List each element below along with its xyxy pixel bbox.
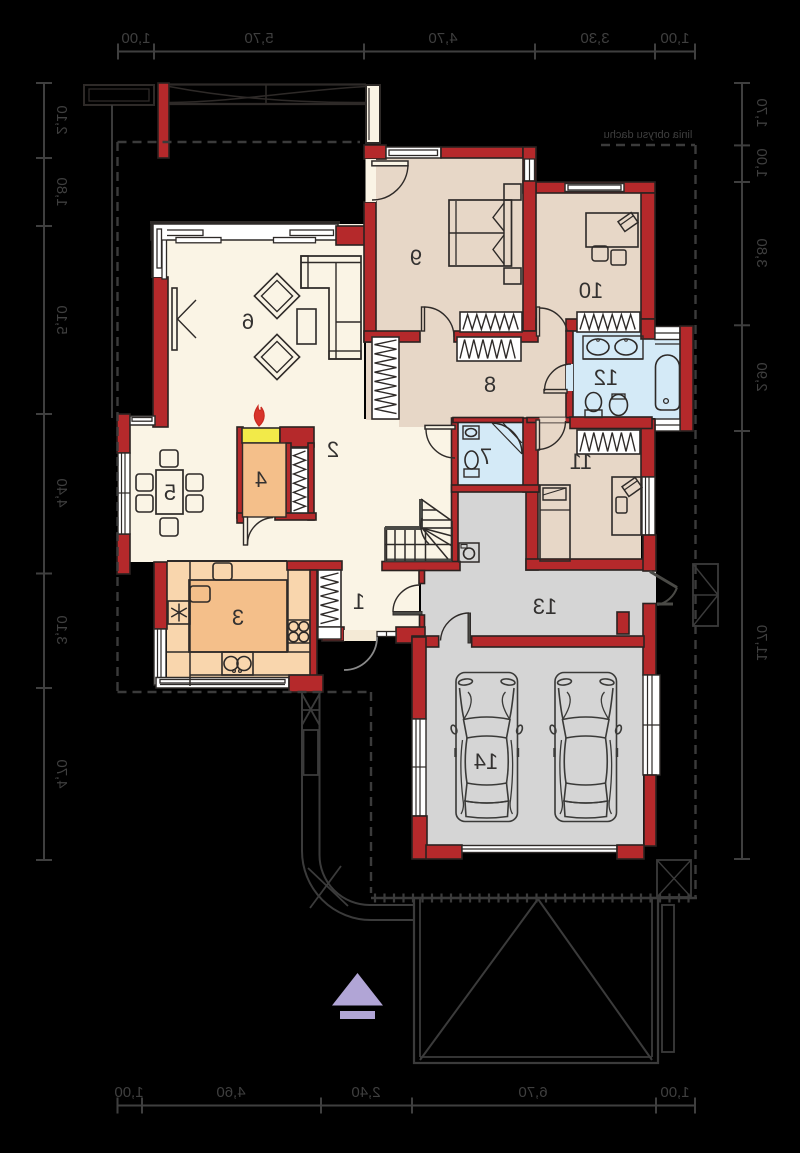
svg-text:12: 12 xyxy=(594,365,618,390)
svg-text:3,80: 3,80 xyxy=(753,238,770,267)
svg-text:1,00: 1,00 xyxy=(660,1084,689,1101)
svg-text:6,70: 6,70 xyxy=(518,1084,547,1101)
svg-text:3: 3 xyxy=(232,605,244,630)
svg-text:4,60: 4,60 xyxy=(216,1084,245,1101)
svg-text:4,40: 4,40 xyxy=(53,478,70,507)
svg-text:4,70: 4,70 xyxy=(428,30,457,47)
svg-text:11: 11 xyxy=(570,449,593,474)
svg-text:linia obrysu dachu: linia obrysu dachu xyxy=(604,129,693,141)
svg-text:1,70: 1,70 xyxy=(753,98,770,127)
svg-text:1,00: 1,00 xyxy=(121,30,150,47)
svg-text:1,80: 1,80 xyxy=(53,177,70,206)
svg-text:1,00: 1,00 xyxy=(753,148,770,177)
svg-text:3,10: 3,10 xyxy=(53,615,70,644)
svg-text:2: 2 xyxy=(327,437,339,462)
svg-text:2,40: 2,40 xyxy=(351,1084,380,1101)
svg-text:5,70: 5,70 xyxy=(244,30,273,47)
svg-text:5: 5 xyxy=(164,480,176,505)
svg-text:1,00: 1,00 xyxy=(660,30,689,47)
svg-text:6: 6 xyxy=(242,309,254,334)
svg-text:5,10: 5,10 xyxy=(53,305,70,334)
svg-text:4: 4 xyxy=(255,467,267,492)
svg-text:3,30: 3,30 xyxy=(580,30,609,47)
svg-text:7: 7 xyxy=(480,444,492,469)
svg-text:2,10: 2,10 xyxy=(53,105,70,134)
svg-text:11,70: 11,70 xyxy=(753,625,770,661)
svg-text:14: 14 xyxy=(474,749,498,774)
svg-text:2,90: 2,90 xyxy=(753,362,770,391)
svg-text:1: 1 xyxy=(353,589,365,614)
svg-text:8: 8 xyxy=(484,372,496,397)
svg-text:10: 10 xyxy=(579,278,603,303)
svg-text:13: 13 xyxy=(533,594,557,619)
svg-text:4,70: 4,70 xyxy=(53,759,70,788)
svg-text:9: 9 xyxy=(410,245,422,270)
svg-text:1,00: 1,00 xyxy=(114,1084,143,1101)
